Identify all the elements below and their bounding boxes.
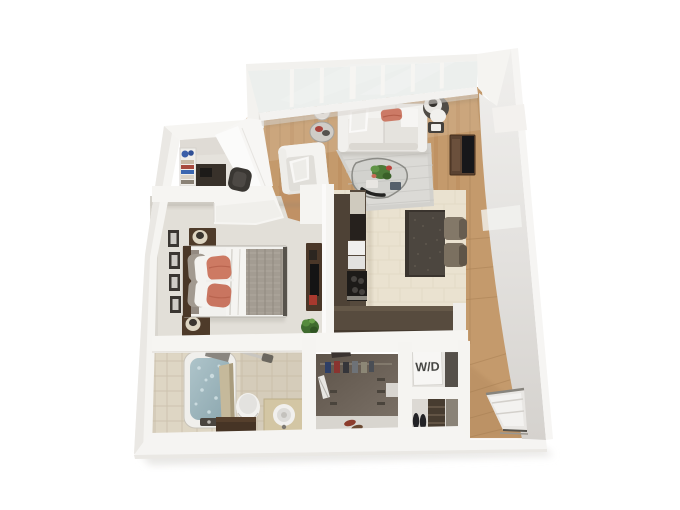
svg-text:W/D: W/D <box>415 360 440 375</box>
